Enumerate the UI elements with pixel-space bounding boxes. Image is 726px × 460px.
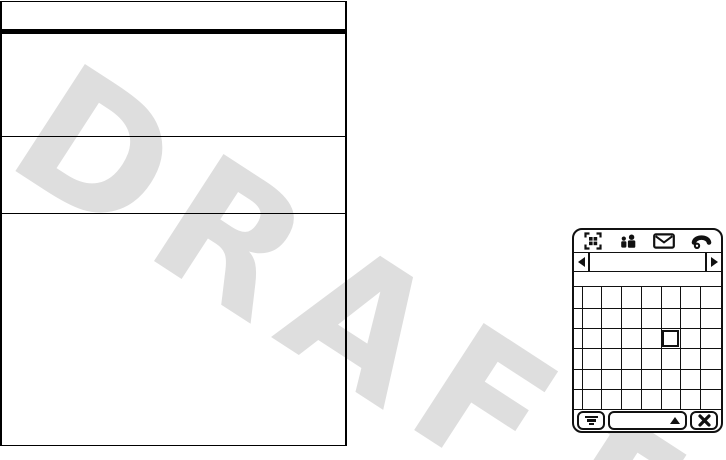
scroll-right-arrow-icon xyxy=(711,257,718,267)
scroll-right-button[interactable] xyxy=(707,253,721,271)
calendar-day-cell[interactable] xyxy=(642,287,662,309)
calendar-day-cell[interactable] xyxy=(662,329,682,349)
calendar-day-cell[interactable] xyxy=(622,349,642,369)
calendar-day-cell[interactable] xyxy=(602,370,622,390)
calendar-day-cell[interactable] xyxy=(622,329,642,349)
calendar-day-cell[interactable] xyxy=(583,329,603,349)
table-header-row xyxy=(2,2,345,34)
calendar-day-cell[interactable] xyxy=(681,370,701,390)
calendar-day-cell[interactable] xyxy=(681,349,701,369)
phone-screen xyxy=(572,228,723,433)
calendar-day-cell[interactable] xyxy=(583,370,603,390)
calendar-day-cell[interactable] xyxy=(602,390,622,410)
menu-icon xyxy=(585,416,598,426)
document-table xyxy=(0,1,347,446)
calendar-day-cell[interactable] xyxy=(642,329,662,349)
calendar-day-cell[interactable] xyxy=(602,287,622,309)
calendar-day-cell[interactable] xyxy=(701,329,721,349)
calendar-day-cell[interactable] xyxy=(662,390,682,410)
calendar-day-cell[interactable] xyxy=(642,390,662,410)
close-icon xyxy=(698,414,711,427)
calendar-day-cell[interactable] xyxy=(681,309,701,329)
calendar-title-bar xyxy=(574,272,721,287)
close-softkey-button[interactable] xyxy=(690,411,718,430)
calendar-day-cell[interactable] xyxy=(662,349,682,369)
calendar-day-cell[interactable] xyxy=(583,390,603,410)
calendar-gutter-cell xyxy=(574,370,583,390)
calendar-day-cell[interactable] xyxy=(583,287,603,309)
calendar-day-cell[interactable] xyxy=(701,309,721,329)
calendar-gutter-cell xyxy=(574,287,583,309)
contacts-icon[interactable] xyxy=(619,233,638,250)
calendar-day-cell[interactable] xyxy=(662,287,682,309)
horizontal-scrollbar xyxy=(574,253,721,272)
calendar-day-cell[interactable] xyxy=(681,390,701,410)
calendar-day-cell[interactable] xyxy=(681,287,701,309)
calendar-day-cell[interactable] xyxy=(602,309,622,329)
calendar-gutter-cell xyxy=(574,309,583,329)
softkey-bar xyxy=(574,410,721,431)
calendar-day-cell[interactable] xyxy=(642,349,662,369)
message-icon[interactable] xyxy=(653,233,675,249)
calendar-day-cell[interactable] xyxy=(642,309,662,329)
calendar-day-cell[interactable] xyxy=(681,329,701,349)
calendar-day-cell[interactable] xyxy=(622,370,642,390)
calendar-day-cell[interactable] xyxy=(622,309,642,329)
phone-call-icon[interactable] xyxy=(691,232,712,250)
calendar-day-cell[interactable] xyxy=(662,309,682,329)
calendar-day-cell[interactable] xyxy=(622,287,642,309)
calendar-day-cell[interactable] xyxy=(602,349,622,369)
menu-softkey-button[interactable] xyxy=(577,411,605,430)
calendar-day-cell[interactable] xyxy=(701,287,721,309)
scrollbar-track[interactable] xyxy=(590,253,705,271)
calendar-day-cell[interactable] xyxy=(622,390,642,410)
calendar-day-cell[interactable] xyxy=(701,390,721,410)
calendar-day-cell[interactable] xyxy=(701,349,721,369)
calendar-day-cell[interactable] xyxy=(602,329,622,349)
center-softkey-button[interactable] xyxy=(608,411,687,430)
table-row xyxy=(2,214,345,445)
calendar-day-cell[interactable] xyxy=(662,370,682,390)
calendar-day-cell[interactable] xyxy=(701,370,721,390)
main-menu-icon[interactable] xyxy=(583,231,603,251)
up-arrow-icon xyxy=(670,417,680,424)
calendar-day-cell[interactable] xyxy=(583,349,603,369)
scroll-left-button[interactable] xyxy=(574,253,588,271)
calendar-day-cell[interactable] xyxy=(583,309,603,329)
calendar-gutter-cell xyxy=(574,349,583,369)
table-row xyxy=(2,34,345,137)
calendar-gutter-cell xyxy=(574,390,583,410)
phone-nav-icon-row xyxy=(574,230,721,253)
calendar-day-cell[interactable] xyxy=(642,370,662,390)
table-row xyxy=(2,137,345,214)
calendar-gutter-cell xyxy=(574,329,583,349)
scroll-left-arrow-icon xyxy=(578,257,585,267)
selected-day-indicator xyxy=(662,330,679,347)
calendar-grid xyxy=(574,287,721,410)
manual-page: DRAFT xyxy=(0,0,726,460)
